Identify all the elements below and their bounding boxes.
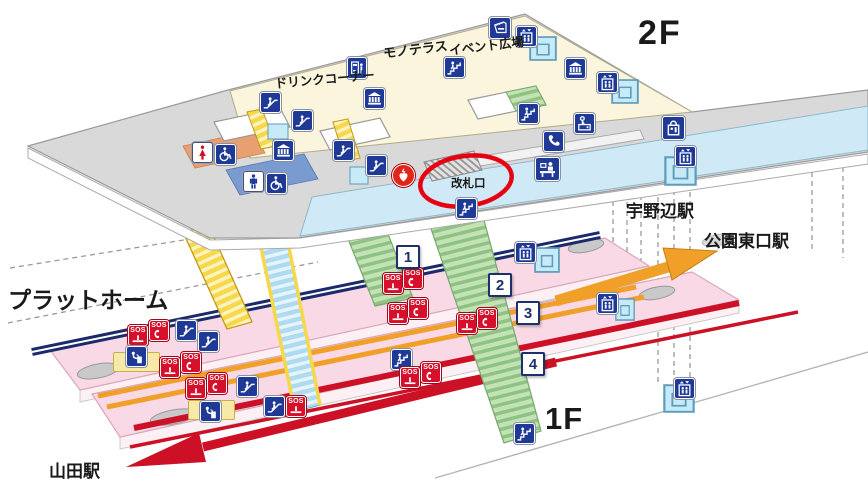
label-floor-1f: 1F (545, 401, 583, 437)
escalator-icon (292, 110, 313, 131)
elevator-box-icon (615, 298, 635, 321)
platform-number-badge: 2 (488, 273, 512, 297)
sos-phone-icon: SOS (207, 373, 227, 394)
aed-icon (392, 164, 415, 187)
stairs-icon (456, 198, 477, 219)
elevator-icon (515, 242, 536, 263)
toilet-female-icon (192, 142, 213, 163)
platform-number-badge: 3 (516, 301, 540, 325)
stairs-icon (518, 103, 539, 124)
escalator-icon (260, 92, 281, 113)
sos-phone-icon: SOS (403, 268, 423, 289)
escalator-icon (264, 396, 285, 417)
stairs-icon (514, 423, 535, 444)
shop-icon (662, 116, 685, 140)
museum-icon (364, 88, 385, 109)
sos-press-icon: SOS (383, 273, 403, 294)
sos-press-icon: SOS (186, 378, 206, 399)
escalator-icon (333, 140, 354, 161)
phone-icon (543, 131, 564, 152)
sos-phone-icon: SOS (421, 362, 441, 383)
elevator-box-icon (534, 247, 560, 273)
escalator-icon (366, 155, 387, 176)
sos-press-icon: SOS (457, 313, 477, 334)
sos-phone-icon: SOS (477, 308, 497, 329)
info-counter-icon (535, 157, 560, 181)
sos-phone-icon: SOS (408, 298, 428, 319)
elevator-icon (674, 378, 695, 399)
wheelchair-icon (266, 173, 287, 194)
sos-press-icon: SOS (388, 303, 408, 324)
museum-icon (565, 58, 586, 79)
fountain-icon (126, 346, 147, 367)
platform-number-badge: 1 (396, 245, 420, 269)
label-station-koen-higashiguchi: 公園東口駅 (704, 227, 789, 252)
elevator-icon (675, 146, 696, 167)
elevator-icon (597, 72, 618, 93)
elevator-icon (597, 293, 618, 314)
label-station-yamada: 山田駅 (49, 457, 100, 482)
escalator-icon (176, 320, 197, 341)
toilet-male-icon (243, 171, 264, 192)
museum-icon (273, 140, 294, 161)
wheelchair-icon (215, 144, 236, 165)
sos-phone-icon: SOS (181, 352, 201, 373)
stairs-icon (444, 57, 465, 78)
sos-press-icon: SOS (400, 367, 420, 388)
escalator-icon (237, 376, 258, 397)
sos-press-icon: SOS (128, 325, 148, 346)
label-floor-2f: 2F (638, 14, 682, 53)
label-platform: プラットホーム (8, 281, 168, 315)
label-station-unobe: 宇野辺駅 (626, 197, 694, 222)
fountain-icon (200, 401, 221, 422)
station-floor-map: SOSSOSSOSSOSSOSSOSSOSSOSSOSSOSSOSSOSSOSS… (0, 0, 868, 494)
platform-number-badge: 4 (521, 352, 545, 376)
sos-press-icon: SOS (160, 357, 180, 378)
label-ticket-gate: 改札口 (451, 175, 486, 191)
escalator-icon (198, 331, 219, 352)
sos-press-icon: SOS (286, 396, 306, 417)
coin-locker-icon (574, 113, 595, 134)
sos-phone-icon: SOS (149, 320, 169, 341)
